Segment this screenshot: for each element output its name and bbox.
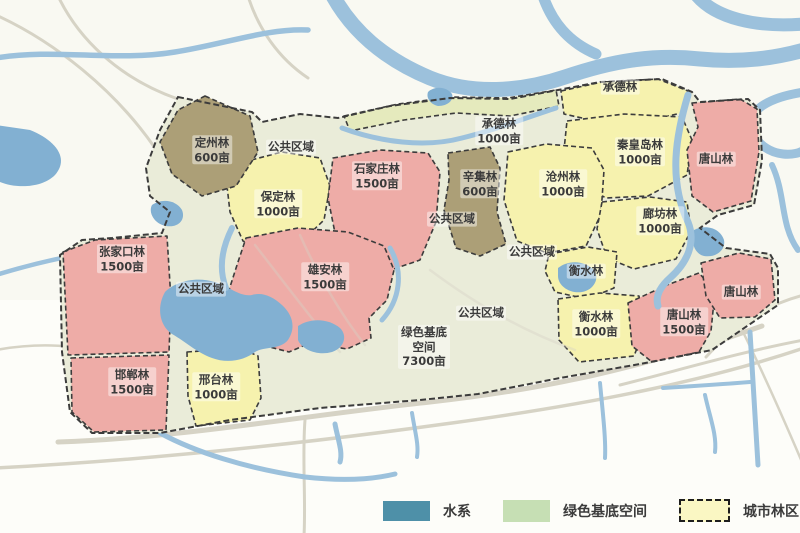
region-label-xinji: 辛集林600亩 [460,169,500,198]
region-label-public-mid-1: 公共区域 [427,212,477,227]
region-label-cangzhou: 沧州林1000亩 [539,169,587,198]
legend-label-water: 水系 [443,501,471,521]
region-label-chengde-strip: 承德林1000亩 [475,116,523,145]
legend-item-water: 水系 [383,501,471,521]
region-label-langfang: 廊坊林1000亩 [636,206,684,235]
region-label-qinhuangdao: 秦皇岛林1000亩 [615,137,665,166]
region-label-hengshui-south: 衡水林1000亩 [572,309,620,338]
region-label-public-top: 公共区域 [266,140,316,155]
region-label-tangshan-east: 唐山林 [722,285,761,300]
green-base-swatch [503,500,550,522]
water-swatch [383,501,430,521]
urban-forest-swatch [679,499,730,522]
region-label-hengshui-upper: 衡水林 [567,264,606,279]
region-label-public-mid-2: 公共区域 [507,245,557,260]
region-label-xiongan: 雄安林1500亩 [301,262,349,291]
legend-label-green-base: 绿色基底空间 [563,501,647,521]
region-label-chengde-ne: 承德林 [601,80,640,95]
region-label-green-base: 绿色基底空间7300亩 [398,325,450,369]
planning-map: 定州林600亩 公共区域 保定林1000亩 石家庄林1500亩 承德林1000亩… [0,0,800,533]
region-label-dingzhou: 定州林600亩 [192,135,232,164]
region-label-xingtai: 邢台林1000亩 [192,372,240,401]
region-label-zhangjiakou: 张家口林1500亩 [97,244,147,273]
region-label-tangshan-south: 唐山林1500亩 [660,307,708,336]
legend-item-green-base: 绿色基底空间 [503,500,647,522]
map-legend: 水系 绿色基底空间 城市林区 [383,499,799,522]
region-label-tangshan-ne: 唐山林 [697,152,736,167]
legend-item-urban-forest: 城市林区 [679,499,799,522]
region-label-public-south: 公共区域 [456,306,506,321]
region-label-baoding: 保定林1000亩 [254,189,302,218]
region-label-public-lake: 公共区域 [176,282,226,297]
region-label-shijiazhuang: 石家庄林1500亩 [352,161,402,190]
legend-label-urban-forest: 城市林区 [743,501,799,521]
region-label-handan: 邯郸林1500亩 [108,367,156,396]
